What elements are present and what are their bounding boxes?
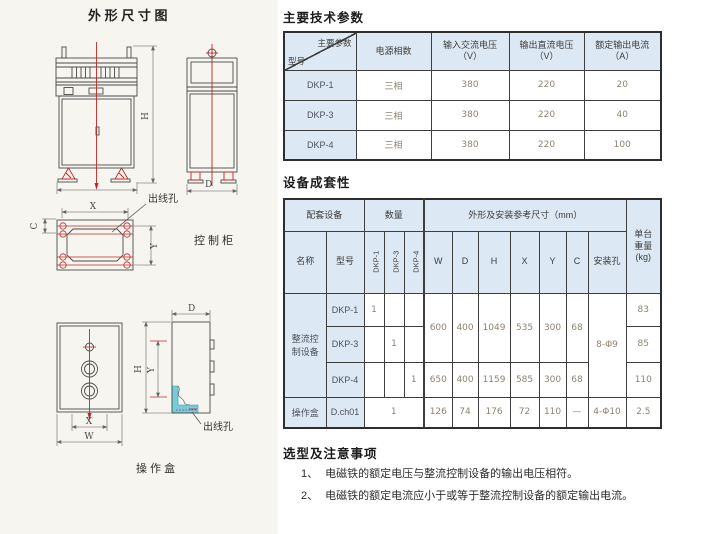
table-header-row-1: 配套设备 数量 外形及安装参考尺寸（mm） 单台 重量 (kg) (284, 199, 661, 231)
plan-dimensions (42, 204, 156, 265)
header-h: H (478, 231, 510, 293)
table-row: DKP-3 三相 380 220 40 (284, 100, 661, 130)
note-item-1: 1、 电磁铁的额定电压与整流控制设备的输出电压相符。 (301, 465, 578, 481)
qty-dkp3: 1 (384, 326, 404, 362)
header-dimensions: 外形及安装参考尺寸（mm） (424, 199, 626, 231)
weight-dkp3: 85 (626, 326, 661, 362)
header-name: 名称 (284, 231, 326, 293)
header-unit-weight: 单台 重量 (kg) (626, 199, 661, 293)
note-item-2: 2、 电磁铁的额定电流应小于或等于整流控制设备的额定输出电流。 (301, 487, 633, 503)
header-output-current: 额定输出电流（A） (584, 32, 661, 70)
qty-empty (364, 326, 384, 362)
model-dkp3: DKP-3 (284, 100, 356, 130)
dim-label-x-plan: X (90, 202, 97, 212)
model-dkp4: DKP-4 (284, 130, 356, 160)
outlet-hole-label-cabinet: 出线孔 (148, 192, 178, 205)
operation-box-label: 操 作 盒 (136, 461, 175, 475)
iout-dkp3: 40 (584, 100, 661, 130)
header-phase: 电源相数 (356, 32, 431, 70)
outlet-hole-label-opbox: 出线孔 (203, 420, 233, 433)
table-row: DKP-1 三相 380 220 20 (284, 70, 661, 100)
model-dch01: D.ch01 (326, 397, 364, 428)
group-rectifier-equipment: 整流控 制设备 (284, 293, 326, 397)
comp-model-dkp1: DKP-1 (326, 293, 364, 326)
dim-label-d-opbox: D (188, 304, 195, 314)
corner-header-cell: 主要参数 型号 (284, 32, 356, 70)
dimension-drawing-panel: 外 形 尺 寸 图 H (0, 0, 278, 534)
phase-dkp1: 三相 (356, 70, 431, 100)
dim-label-h-cabinet: H (141, 112, 151, 120)
drawing-title: 外 形 尺 寸 图 (87, 8, 167, 23)
section-title-completeness: 设备成套性 (283, 172, 351, 191)
mounting-hole-opbox: 4-Φ10 (588, 397, 626, 428)
note-text: 电磁铁的额定电压与整流控制设备的输出电压相符。 (325, 465, 578, 481)
header-input-voltage: 输入交流电压（V） (431, 32, 509, 70)
comp-model-dkp3: DKP-3 (326, 326, 364, 362)
dim-y-dkp4: 300 (539, 362, 566, 397)
header-equipment: 配套设备 (284, 199, 364, 231)
dim-h-opbox: 176 (478, 397, 510, 428)
mounting-hole-dkp: 8-Φ9 (588, 293, 626, 397)
vout-dkp3: 220 (509, 100, 584, 130)
dim-w-dkp4: 650 (424, 362, 452, 397)
opbox-front-centerline (83, 329, 96, 420)
page: { "drawing": { "title": "外 形 尺 寸 图", "ca… (0, 0, 703, 534)
dim-y-dkp13: 300 (539, 293, 566, 362)
note-text: 电磁铁的额定电流应小于或等于整流控制设备的额定输出电流。 (325, 487, 633, 503)
header-d: D (452, 231, 478, 293)
dim-label-h-opbox: H (134, 365, 144, 373)
table-row: DKP-4 三相 380 220 100 (284, 130, 661, 160)
dim-label-y-plan: Y (150, 242, 160, 250)
header-y: Y (539, 231, 566, 293)
vout-dkp1: 220 (509, 70, 584, 100)
header-model: 型号 (326, 231, 364, 293)
header-w: W (424, 231, 452, 293)
qty-empty (404, 293, 424, 326)
weight-dkp4: 110 (626, 362, 661, 397)
phase-dkp4: 三相 (356, 130, 431, 160)
table-header-row-2: 名称 型号 DKP-1 DKP-3 DKP-4 W D H X Y C 安装孔 (284, 231, 661, 293)
qty-empty (404, 326, 424, 362)
header-mounting-hole: 安装孔 (588, 231, 626, 293)
dim-label-d-cabinet: D (205, 180, 212, 190)
header-qty-dkp1: DKP-1 (364, 231, 384, 293)
dim-x-dkp4: 585 (510, 362, 539, 397)
table-row: 操作盒 D.ch01 1 126 74 176 72 110 — 4-Φ10 2… (284, 397, 661, 428)
header-qty-dkp4: DKP-4 (404, 231, 424, 293)
dim-label-w-opbox: W (84, 432, 94, 442)
header-qty-dkp3: DKP-3 (384, 231, 404, 293)
control-cabinet-label: 控 制 柜 (194, 233, 233, 247)
header-x: X (510, 231, 539, 293)
table-row: 整流控 制设备 DKP-1 1 600 400 1049 535 300 68 … (284, 293, 661, 326)
note-marker: 2、 (301, 487, 318, 503)
phase-dkp3: 三相 (356, 100, 431, 130)
section-title-parameters: 主要技术参数 (283, 7, 364, 26)
dim-w-opbox: 126 (424, 397, 452, 428)
qty-opbox: 1 (364, 397, 424, 428)
qty-dkp4: 1 (404, 362, 424, 397)
dim-d-dkp13: 400 (452, 293, 478, 362)
model-dkp1: DKP-1 (284, 70, 356, 100)
dim-label-y-opbox: Y (147, 366, 157, 374)
dim-h-dkp4: 1159 (478, 362, 510, 397)
iout-dkp4: 100 (584, 130, 661, 160)
section-title-notes: 选型及注意事项 (283, 443, 378, 462)
dim-c-dkp4: 68 (566, 362, 588, 397)
note-marker: 1、 (301, 465, 318, 481)
dim-w-dkp13: 600 (424, 293, 452, 362)
dim-x-opbox: 72 (510, 397, 539, 428)
dim-d-dkp4: 400 (452, 362, 478, 397)
cabinet-plan-view (57, 220, 133, 270)
weight-opbox: 2.5 (626, 397, 661, 428)
qty-empty (384, 293, 404, 326)
corner-bottom-label: 型号 (288, 55, 305, 67)
vent-grid (72, 67, 119, 78)
dim-d-opbox: 74 (452, 397, 478, 428)
vin-dkp1: 380 (431, 70, 509, 100)
equipment-completeness-table: 配套设备 数量 外形及安装参考尺寸（mm） 单台 重量 (kg) 名称 型号 D… (283, 198, 662, 429)
vin-dkp4: 380 (431, 130, 509, 160)
qty-empty (384, 362, 404, 397)
header-quantity: 数量 (364, 199, 424, 231)
qty-dkp1: 1 (364, 293, 384, 326)
dim-y-opbox: 110 (539, 397, 566, 428)
qty-empty (364, 362, 384, 397)
iout-dkp1: 20 (584, 70, 661, 100)
vin-dkp3: 380 (431, 100, 509, 130)
name-operation-box: 操作盒 (284, 397, 326, 428)
dim-c-dkp13: 68 (566, 293, 588, 362)
header-output-voltage: 输出直流电压（V） (509, 32, 584, 70)
outline-dimension-figure: 外 形 尺 寸 图 H (0, 0, 278, 534)
header-c: C (566, 231, 588, 293)
dim-label-c-plan: C (30, 222, 40, 229)
dim-h-dkp13: 1049 (478, 293, 510, 362)
vout-dkp4: 220 (509, 130, 584, 160)
dim-x-dkp13: 535 (510, 293, 539, 362)
cabinet-front-feet (62, 168, 128, 179)
weight-dkp1: 83 (626, 293, 661, 326)
comp-model-dkp4: DKP-4 (326, 362, 364, 397)
dim-c-opbox: — (566, 397, 588, 428)
main-parameters-table: 主要参数 型号 电源相数 输入交流电压（V） 输出直流电压（V） 额定输出电流（… (283, 31, 662, 161)
corner-top-label: 主要参数 (317, 37, 351, 49)
dim-label-x-opbox: X (86, 417, 93, 427)
